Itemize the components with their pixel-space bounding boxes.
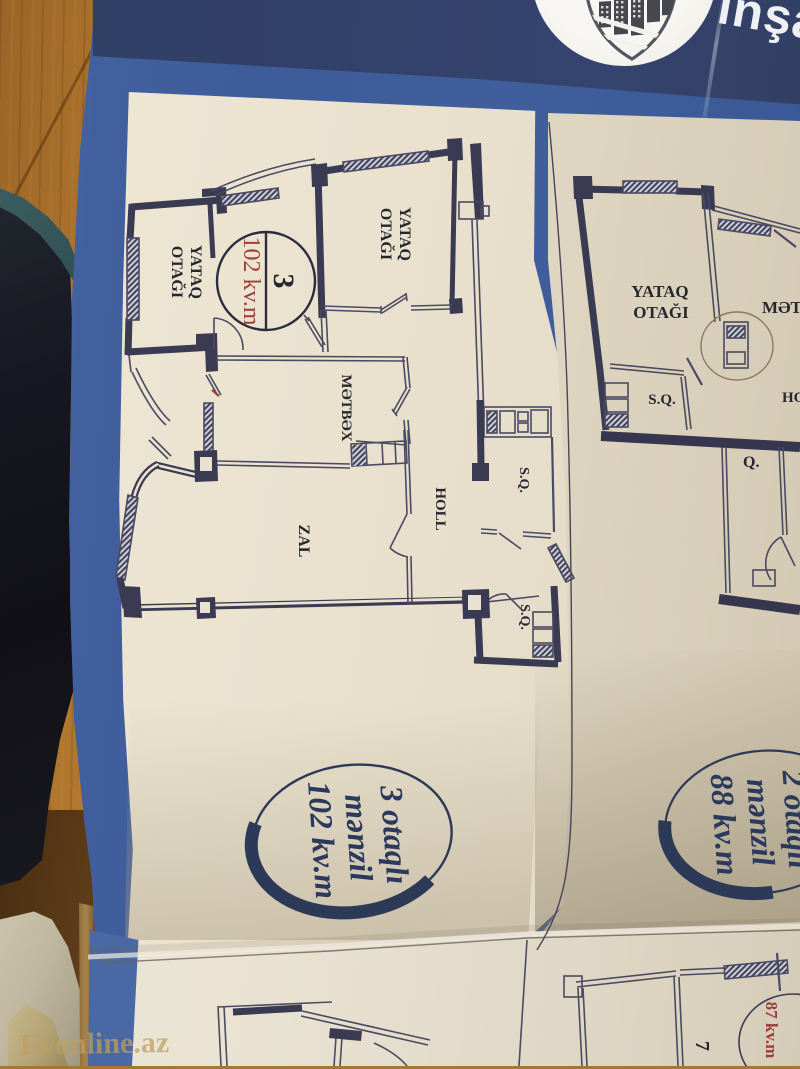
svg-text:HOLL: HOLL [782,390,800,406]
svg-text:MƏTBƏX: MƏTBƏX [338,374,354,441]
svg-text:OTAĞI: OTAĞI [168,246,187,298]
svg-text:88 kv.m: 88 kv.m [704,772,747,876]
svg-text:YATAQ: YATAQ [187,245,204,299]
svg-text:OTAĞI: OTAĞI [633,303,689,322]
svg-text:ZAL: ZAL [295,525,312,558]
svg-text:7: 7 [691,1041,713,1051]
svg-text:OTAĞI: OTAĞI [377,208,396,260]
svg-text:102 kv.m: 102 kv.m [238,236,264,325]
svg-text:S.Q.: S.Q. [517,604,532,630]
svg-text:YATAQ: YATAQ [396,207,413,261]
svg-text:mənzil: mənzil [338,793,380,883]
svg-text:S.Q.: S.Q. [648,392,676,408]
svg-text:YATAQ: YATAQ [631,282,688,301]
svg-text:Q.: Q. [743,454,759,471]
svg-text:87 kv.m: 87 kv.m [762,1002,781,1059]
svg-text:3: 3 [267,274,300,289]
svg-text:HOLL: HOLL [432,487,448,530]
svg-text:S.Q.: S.Q. [516,467,531,493]
svg-text:MƏTBƏX: MƏTBƏX [762,298,800,317]
svg-text:102 kv.m: 102 kv.m [301,780,345,900]
svg-text:mənzil: mənzil [740,777,782,867]
